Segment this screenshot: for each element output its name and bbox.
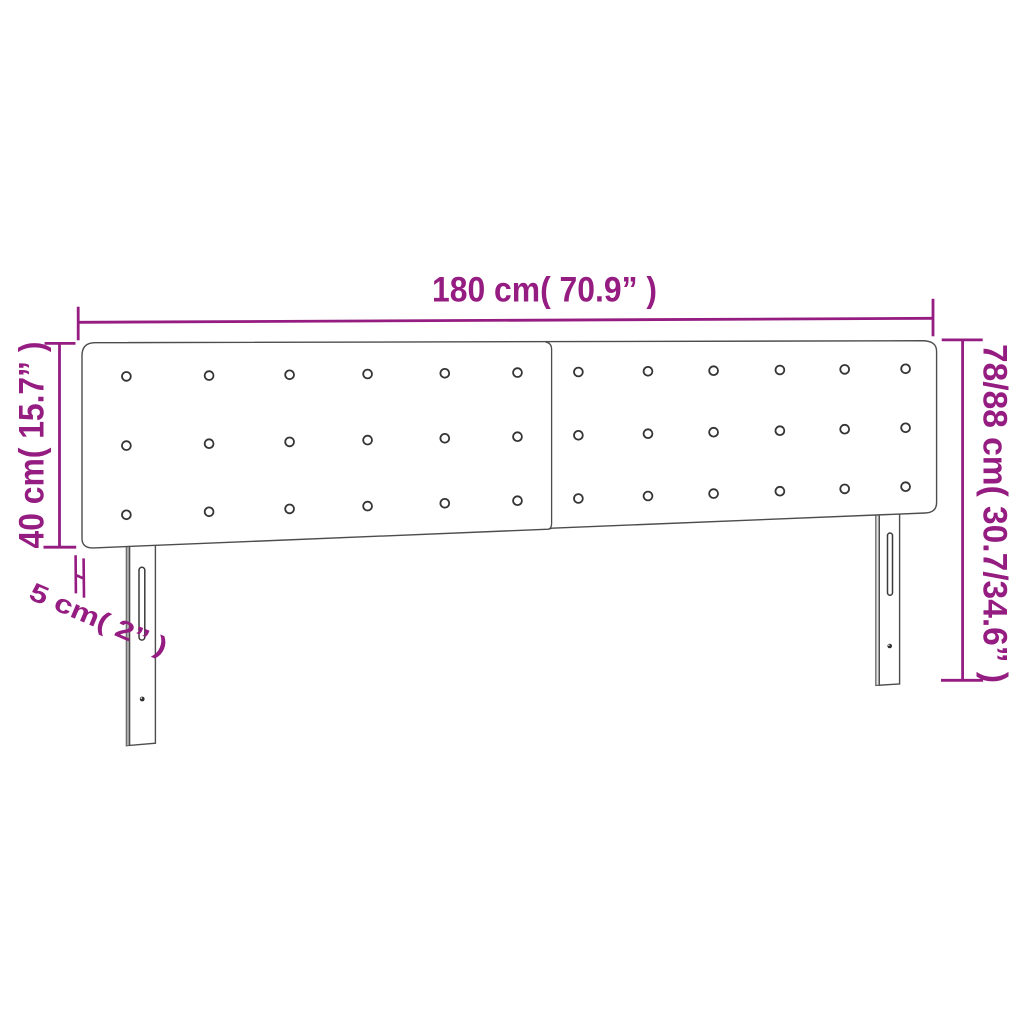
svg-text:40 cm( 15.7” ): 40 cm( 15.7” ) <box>13 342 52 549</box>
svg-text:180 cm( 70.9” ): 180 cm( 70.9” ) <box>432 271 657 310</box>
svg-text:78/88 cm( 30.7/34.6” ): 78/88 cm( 30.7/34.6” ) <box>976 344 1014 683</box>
